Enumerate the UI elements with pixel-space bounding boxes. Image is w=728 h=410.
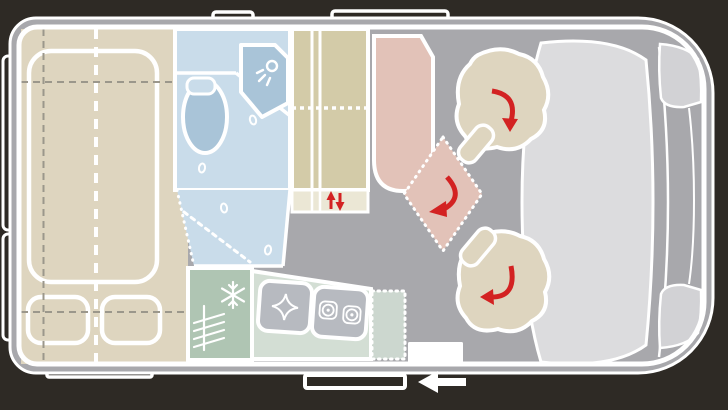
- wardrobe-zone: [292, 29, 368, 212]
- counter-flap: [372, 291, 405, 359]
- toilet: [183, 78, 227, 153]
- sliding-door-rail: [305, 375, 405, 388]
- sink: [257, 280, 312, 334]
- floorplan-stage: [0, 0, 728, 410]
- entry-step: [408, 342, 463, 364]
- shower-tray: [177, 190, 290, 266]
- bathroom-zone: [175, 29, 290, 266]
- stove: [311, 286, 368, 340]
- floorplan-svg: [0, 0, 728, 410]
- bed-zone: [21, 29, 188, 364]
